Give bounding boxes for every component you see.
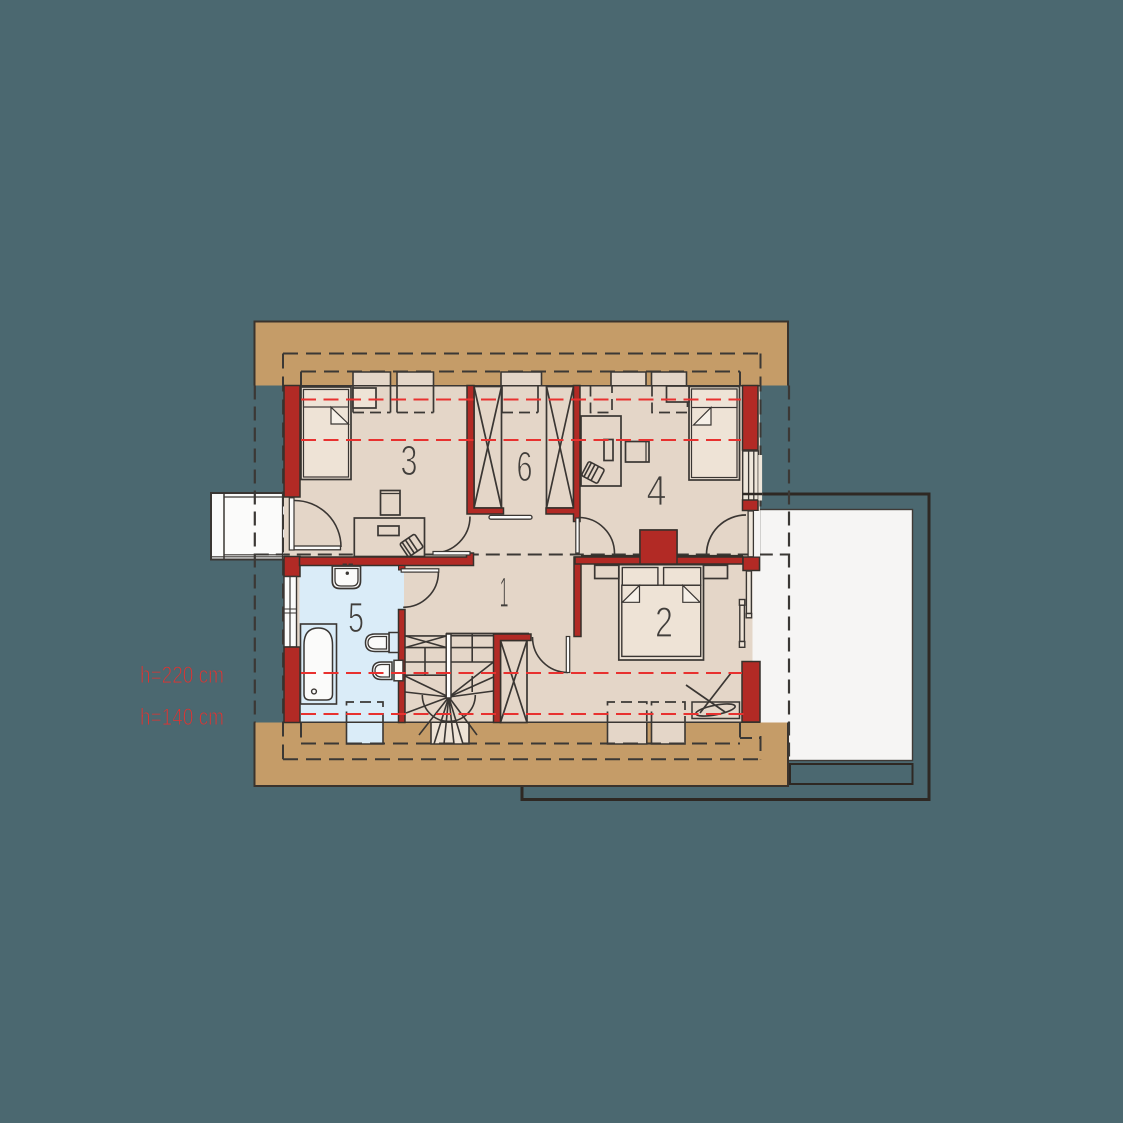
svg-text:1: 1 <box>500 569 509 617</box>
svg-text:6: 6 <box>517 443 533 491</box>
svg-text:2: 2 <box>655 599 673 647</box>
svg-text:5: 5 <box>348 594 364 642</box>
svg-text:h=140 cm: h=140 cm <box>140 704 224 731</box>
svg-text:4: 4 <box>647 467 667 515</box>
svg-text:h=220 cm: h=220 cm <box>140 662 224 689</box>
svg-text:3: 3 <box>401 437 418 485</box>
